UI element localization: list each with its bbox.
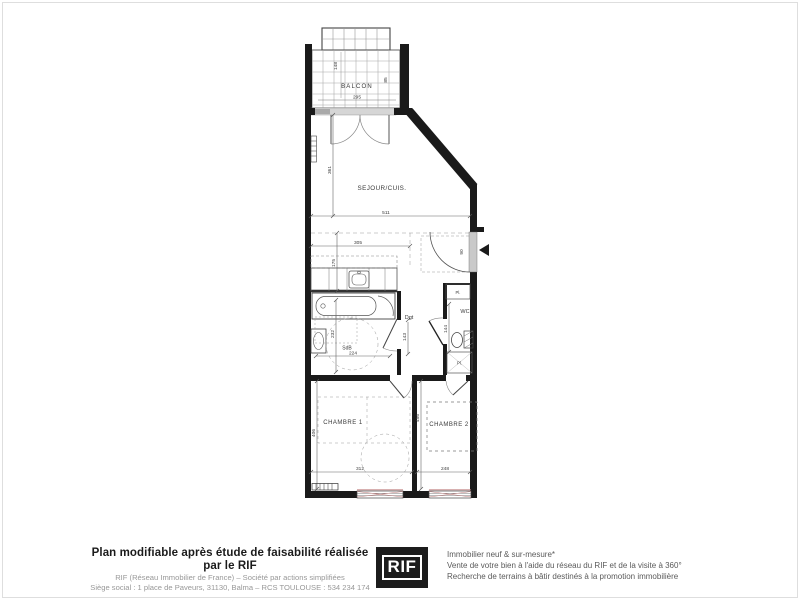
dim-cuisine-width: 305 bbox=[354, 240, 362, 246]
footer-right-block: Immobilier neuf & sur-mesure* Vente de v… bbox=[447, 549, 707, 582]
dim-chambre1-height: 406 bbox=[311, 429, 317, 437]
dim-entree-door: 90 bbox=[459, 249, 465, 255]
dim-dgt-height: 143 bbox=[402, 333, 408, 341]
rif-logo: RIF bbox=[376, 547, 428, 588]
room-label-balcon: BALCON bbox=[341, 84, 373, 90]
footer-service-line-2: Vente de votre bien à l'aide du réseau d… bbox=[447, 560, 707, 571]
dim-chambre1-width: 312 bbox=[356, 466, 364, 472]
closet-label-bottom: Pl. bbox=[457, 361, 462, 366]
chambre-1: CHAMBRE 1 406 312 bbox=[311, 381, 412, 490]
rif-logo-frame: RIF bbox=[382, 555, 423, 580]
dim-balcon-width: 295 bbox=[353, 95, 361, 101]
interior-walls bbox=[305, 283, 477, 491]
salle-de-bains: SdB 224 232 bbox=[311, 293, 397, 372]
room-label-sejour: SEJOUR/CUIS. bbox=[358, 185, 407, 192]
floorplan-drawing: BALCON 295 148 85 bbox=[0, 0, 800, 600]
footer-service-line-3: Recherche de terrains à bâtir destinés à… bbox=[447, 571, 707, 582]
entrance-arrow-icon bbox=[479, 244, 489, 256]
rif-logo-text: RIF bbox=[388, 557, 417, 576]
dim-sejour-height: 361 bbox=[327, 166, 333, 174]
dim-balcon-depth: 148 bbox=[333, 62, 339, 70]
dim-wc-height: 144 bbox=[443, 325, 449, 333]
dimension-ticks bbox=[309, 113, 472, 491]
wc: WC 144 Pl. Pl. bbox=[429, 284, 473, 373]
dim-chambre2-width: 248 bbox=[441, 466, 449, 472]
chambre-2: CHAMBRE 2 456 248 bbox=[415, 381, 477, 489]
dim-sdb-height: 232 bbox=[330, 330, 336, 338]
room-label-chambre1: CHAMBRE 1 bbox=[323, 420, 363, 426]
balcony: BALCON 295 148 85 bbox=[305, 28, 409, 110]
dim-sejour-width: 511 bbox=[382, 210, 390, 216]
footer-left-block: Plan modifiable après étude de faisabili… bbox=[88, 547, 372, 592]
page: BALCON 295 148 85 bbox=[0, 0, 800, 600]
room-label-dgt: Dgt bbox=[405, 315, 414, 321]
dim-sdb-width: 224 bbox=[349, 351, 357, 357]
french-door bbox=[331, 115, 389, 144]
closet-label-top: Pl. bbox=[456, 290, 461, 295]
footer-service-line-1: Immobilier neuf & sur-mesure* bbox=[447, 549, 707, 560]
dim-balcon-side: 85 bbox=[383, 77, 389, 83]
dim-cuisine-depth: 175 bbox=[331, 259, 337, 267]
room-label-wc: WC bbox=[460, 309, 469, 315]
room-label-chambre2: CHAMBRE 2 bbox=[429, 422, 469, 428]
footer-company-line: RIF (Réseau Immobilier de France) – Soci… bbox=[88, 573, 372, 583]
dim-chambre2-height: 456 bbox=[415, 414, 421, 422]
footer-title: Plan modifiable après étude de faisabili… bbox=[88, 547, 372, 573]
footer-address-line: Siège social : 1 place de Paveurs, 31130… bbox=[88, 583, 372, 593]
